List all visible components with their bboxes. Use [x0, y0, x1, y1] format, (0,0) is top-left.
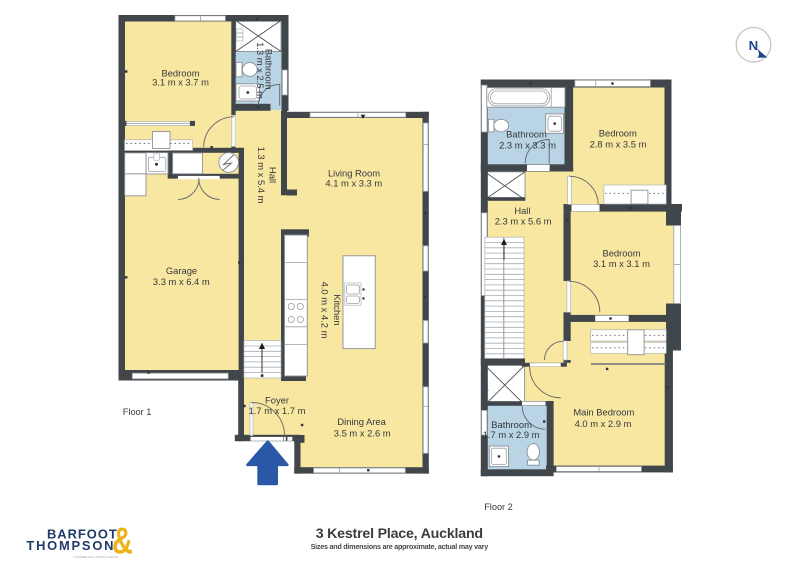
svg-text:LICENSED REAL ESTATE AGENTS: LICENSED REAL ESTATE AGENTS	[74, 555, 119, 559]
svg-text:Garage: Garage	[166, 265, 197, 276]
svg-text:2.3 m x 5.6 m: 2.3 m x 5.6 m	[495, 215, 552, 226]
svg-text:Floor 2: Floor 2	[484, 502, 513, 512]
svg-text:2.8 m x 3.5 m: 2.8 m x 3.5 m	[590, 139, 647, 150]
svg-text:4.0 m x 2.9 m: 4.0 m x 2.9 m	[575, 418, 632, 429]
svg-text:THOMPSON: THOMPSON	[26, 538, 115, 553]
svg-text:Bedroom: Bedroom	[599, 128, 637, 139]
svg-text:3.5 m x 2.6 m: 3.5 m x 2.6 m	[334, 427, 391, 438]
svg-text:Main Bedroom: Main Bedroom	[573, 406, 634, 417]
svg-text:N: N	[749, 38, 759, 53]
svg-text:4.1 m x 3.3 m: 4.1 m x 3.3 m	[325, 177, 382, 188]
svg-text:Hall: Hall	[514, 205, 530, 216]
svg-text:Sizes and dimensions are appro: Sizes and dimensions are approximate, ac…	[311, 542, 489, 551]
svg-text:1.7 m x 2.9 m: 1.7 m x 2.9 m	[483, 429, 540, 440]
svg-text:Floor 1: Floor 1	[123, 407, 152, 417]
svg-text:1.3 m x 5.4 m: 1.3 m x 5.4 m	[256, 147, 267, 204]
svg-text:Foyer: Foyer	[265, 394, 289, 405]
svg-text:Dining Area: Dining Area	[337, 416, 386, 427]
svg-text:Hall: Hall	[268, 167, 279, 183]
svg-text:2.3 m x 3.3 m: 2.3 m x 3.3 m	[499, 140, 556, 151]
svg-text:Kitchen: Kitchen	[332, 294, 343, 325]
svg-text:1.7 m x 1.7 m: 1.7 m x 1.7 m	[249, 405, 306, 416]
svg-text:1.3 m x 2.5 m: 1.3 m x 2.5 m	[255, 42, 266, 99]
svg-text:Bedroom: Bedroom	[602, 247, 640, 258]
svg-text:3.3 m x 6.4 m: 3.3 m x 6.4 m	[153, 276, 210, 287]
svg-text:Bathroom: Bathroom	[506, 129, 547, 140]
svg-text:3 Kestrel Place, Auckland: 3 Kestrel Place, Auckland	[316, 526, 483, 542]
svg-text:3.1 m x 3.7 m: 3.1 m x 3.7 m	[152, 77, 209, 88]
svg-text:4.0 m x 4.2 m: 4.0 m x 4.2 m	[319, 282, 330, 339]
svg-text:3.1 m x 3.1 m: 3.1 m x 3.1 m	[593, 258, 650, 269]
